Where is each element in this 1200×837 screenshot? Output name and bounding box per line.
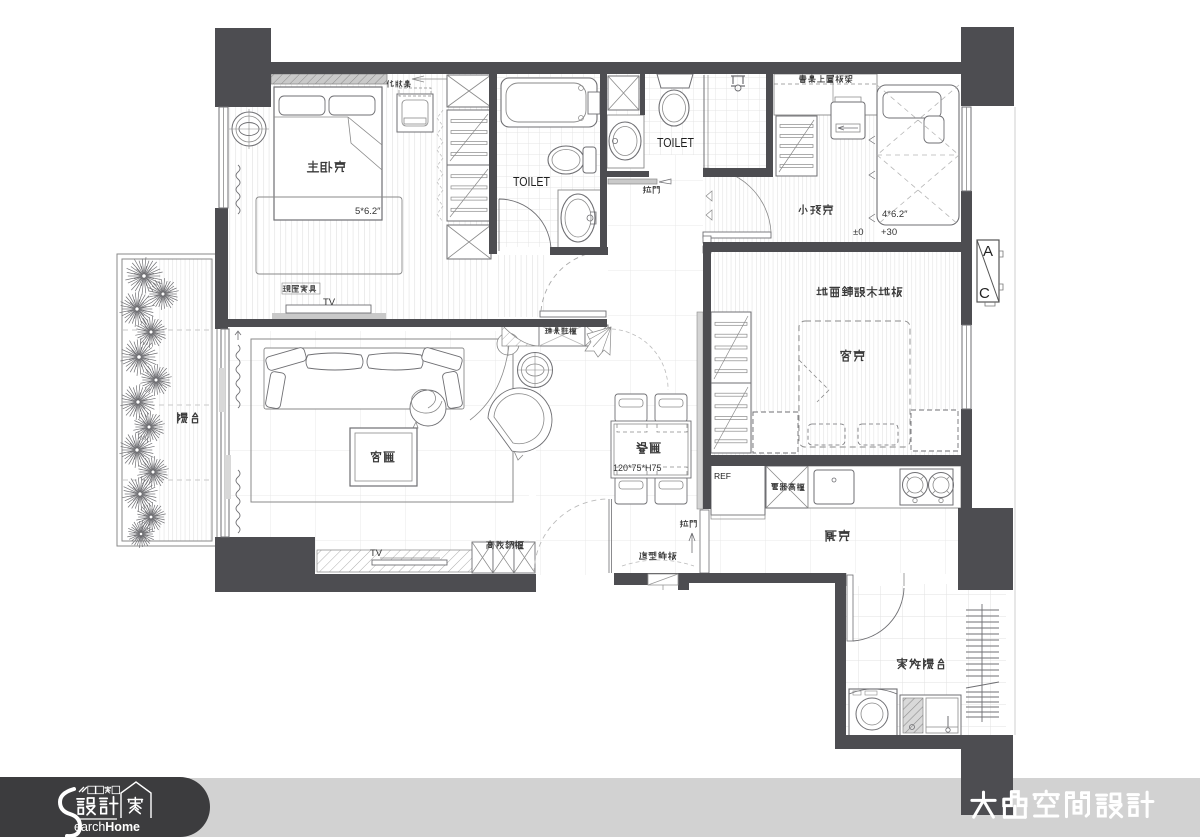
svg-text:REF: REF (714, 471, 731, 481)
svg-text:4*6.2″: 4*6.2″ (882, 209, 908, 220)
svg-text:C: C (979, 285, 990, 302)
svg-text:120*75*H75: 120*75*H75 (613, 463, 662, 473)
svg-text:TOILET: TOILET (513, 174, 550, 189)
svg-text:earchHome: earchHome (74, 820, 140, 834)
svg-text:TV: TV (323, 297, 336, 308)
svg-text:5*6.2″: 5*6.2″ (355, 206, 381, 217)
svg-text:TV: TV (370, 548, 383, 559)
svg-text:TOILET: TOILET (657, 135, 694, 150)
svg-text:+30: +30 (881, 227, 897, 238)
svg-text:A: A (983, 243, 993, 260)
svg-text:±0: ±0 (853, 227, 864, 238)
